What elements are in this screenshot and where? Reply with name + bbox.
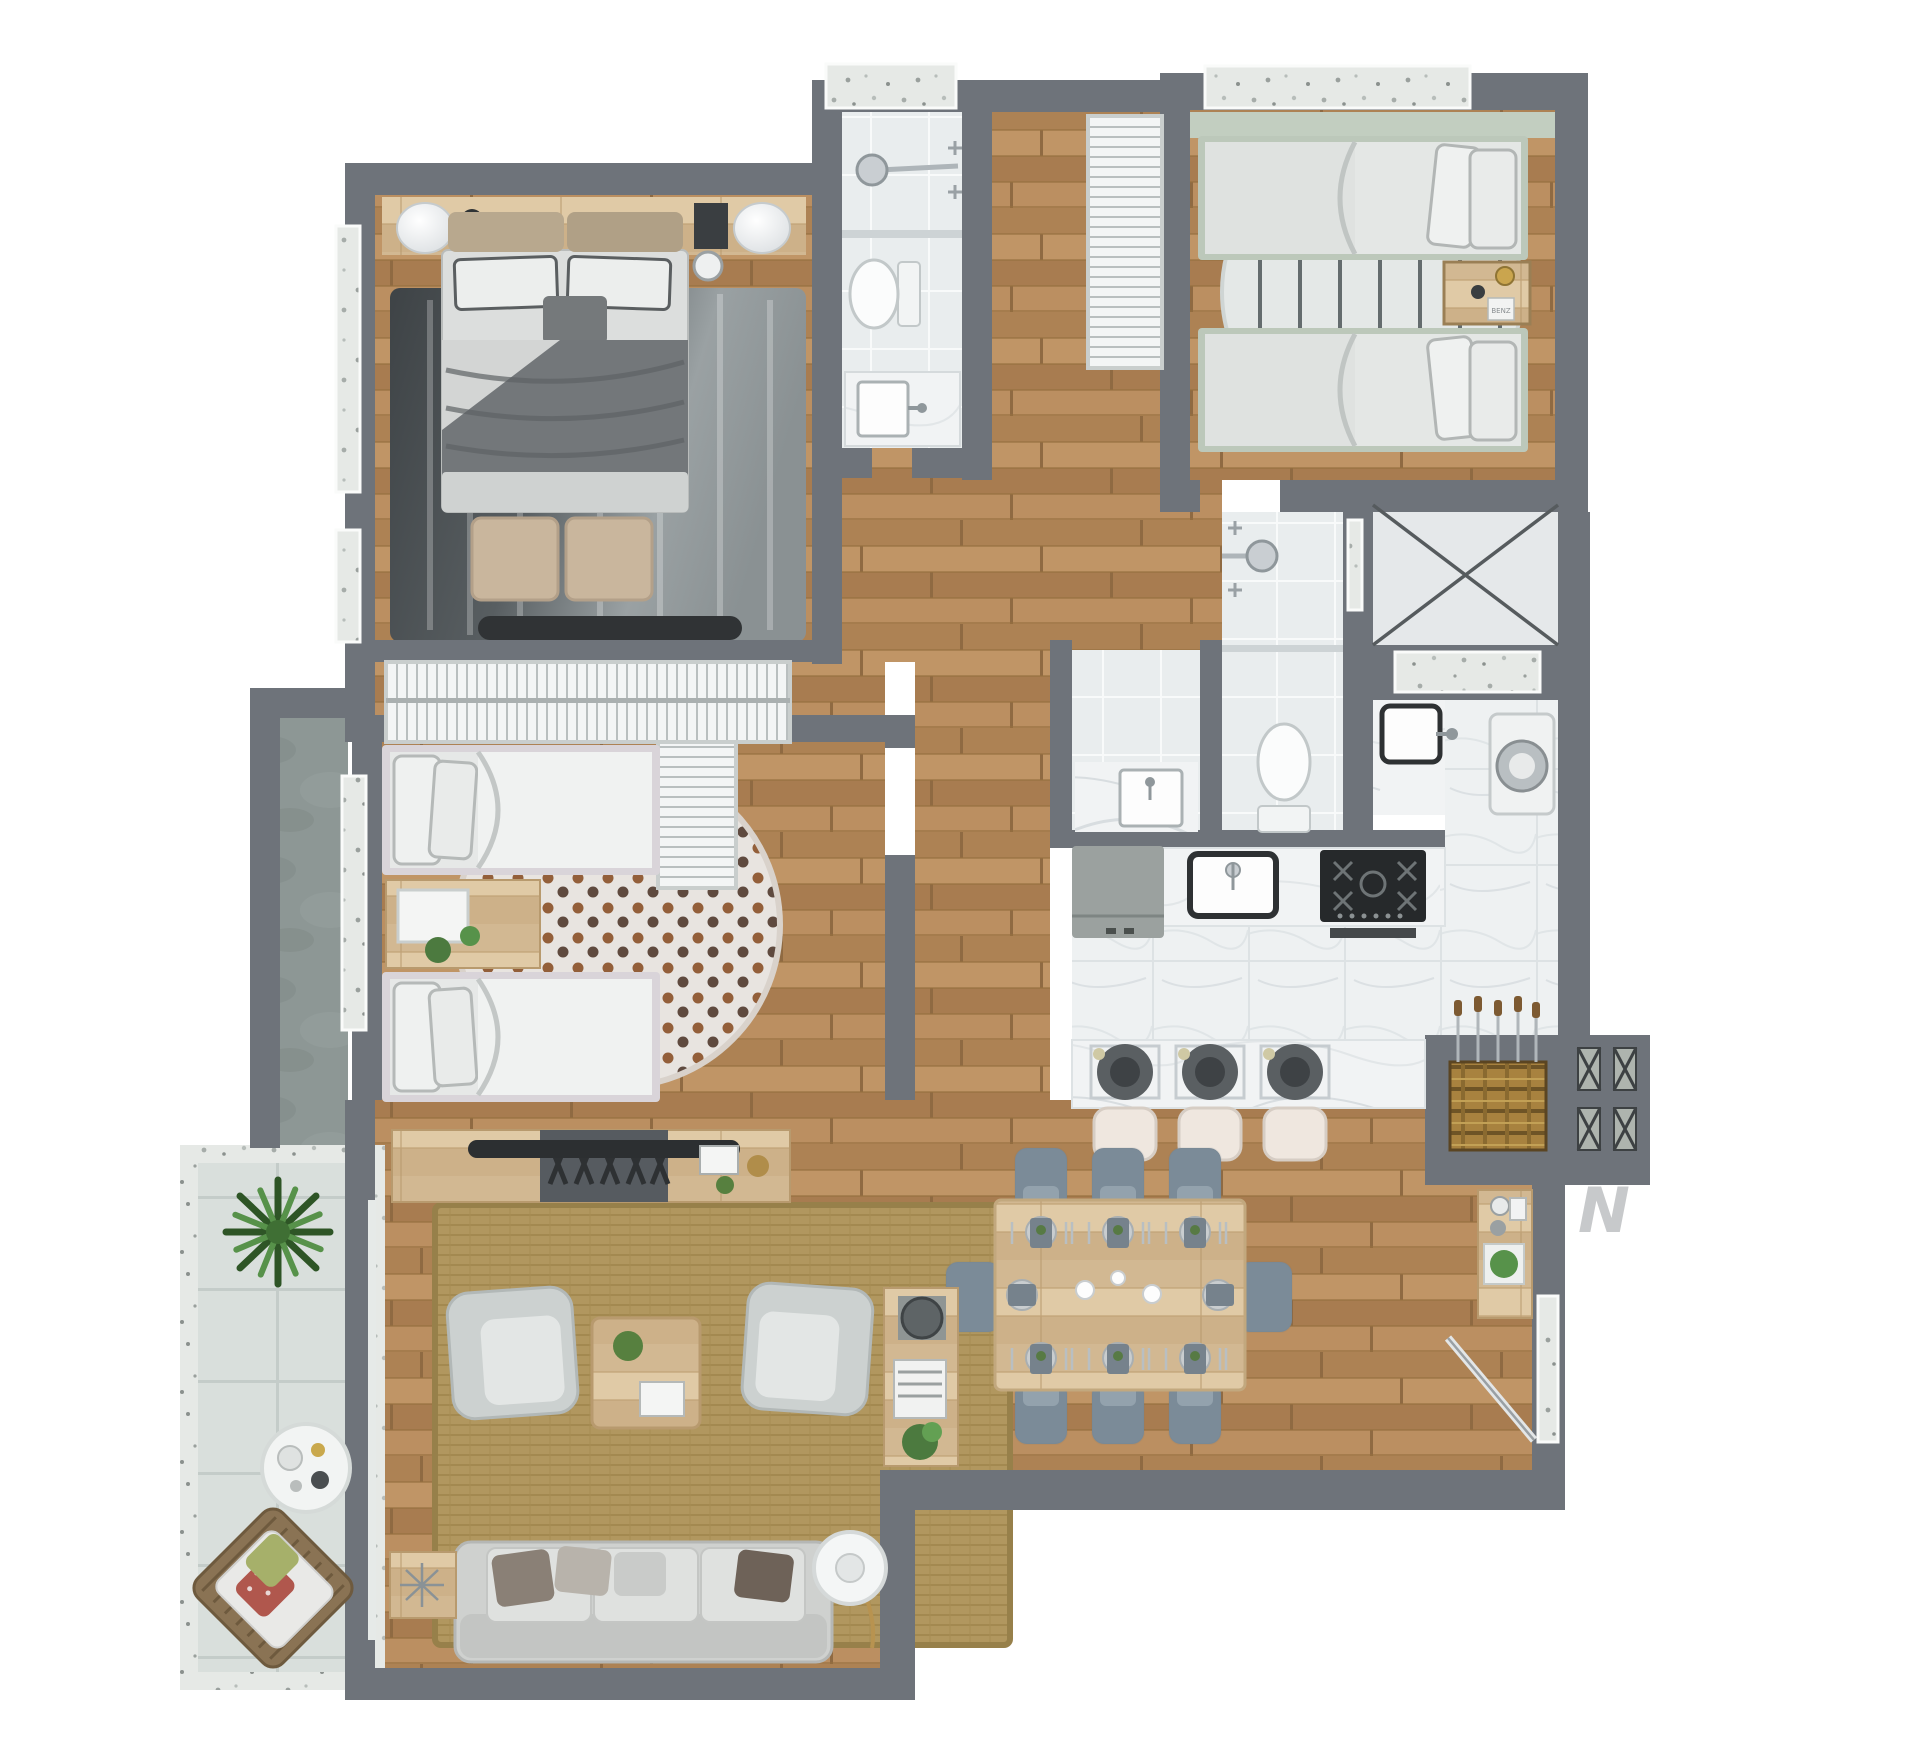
speaker-icon <box>694 203 728 249</box>
pillow <box>429 761 478 860</box>
shower-glass <box>1222 645 1343 652</box>
washing-machine-icon <box>1490 714 1554 814</box>
sofa <box>455 1542 832 1662</box>
floor-plan: BENZ <box>0 0 1920 1748</box>
wall <box>1050 640 1072 848</box>
wall <box>1160 480 1200 512</box>
side-table <box>390 1552 456 1618</box>
window <box>336 530 360 642</box>
wall <box>345 163 842 195</box>
north-letter: N <box>1578 1174 1630 1247</box>
kitchen-sink-icon <box>1190 854 1276 916</box>
pillow <box>454 256 558 310</box>
plant-icon <box>1490 1250 1518 1278</box>
ottoman <box>566 518 652 600</box>
plant-icon <box>613 1331 643 1361</box>
service-balcony-floor <box>280 718 348 1148</box>
wall <box>912 448 992 478</box>
book-icon <box>640 1382 684 1416</box>
shower-glass <box>842 230 962 238</box>
window <box>336 226 360 492</box>
pillow <box>554 1545 613 1596</box>
plant-icon <box>460 926 480 946</box>
ottoman <box>472 518 558 600</box>
wood-nightstand: BENZ <box>1444 262 1530 324</box>
refrigerator-icon <box>1072 846 1164 938</box>
armchair <box>741 1282 874 1416</box>
teapot-icon <box>278 1446 302 1470</box>
duvet <box>1205 334 1355 446</box>
pillow <box>1470 150 1516 248</box>
pillow <box>429 988 478 1087</box>
pillow <box>1470 342 1516 440</box>
bar-console <box>1478 1190 1532 1318</box>
terrace-sliding-door <box>368 1200 376 1640</box>
entry-threshold <box>1538 1296 1558 1442</box>
wall <box>885 855 915 1100</box>
slatted-cabinet <box>658 742 736 888</box>
sparkle-plant-icon <box>400 1563 444 1607</box>
table-lamp-icon <box>397 203 453 253</box>
bottles-icon <box>1510 1198 1526 1220</box>
wall <box>1555 73 1588 512</box>
duvet <box>478 979 652 1095</box>
tv-panel-icon <box>478 616 742 640</box>
sink-icon <box>858 382 908 436</box>
duvet <box>478 752 652 868</box>
decor-icon <box>1471 285 1485 299</box>
magazines-icon <box>894 1360 946 1418</box>
cup-icon <box>1490 1220 1506 1236</box>
window <box>1348 520 1362 610</box>
wardrobe-rail <box>386 698 790 703</box>
wall <box>250 688 348 718</box>
book-icon <box>700 1146 738 1174</box>
bowl-icon <box>311 1471 329 1489</box>
plant-icon <box>716 1176 734 1194</box>
coffee-table <box>592 1318 700 1428</box>
toilet-icon <box>1258 724 1310 832</box>
cup-icon <box>290 1480 302 1492</box>
bar-stool <box>1264 1108 1326 1160</box>
wall <box>885 715 915 748</box>
single-bed <box>382 972 660 1102</box>
wall <box>880 1470 1565 1510</box>
single-bed <box>1198 136 1528 260</box>
window <box>342 776 366 1030</box>
double-bed <box>442 212 688 512</box>
wall <box>1280 480 1588 512</box>
tray-icon <box>398 890 468 942</box>
sphere-lamp-icon <box>902 1298 942 1338</box>
tray-icon <box>694 252 722 280</box>
media-console <box>392 1130 790 1202</box>
window <box>1205 66 1470 108</box>
pillow <box>491 1548 556 1608</box>
sheet-band <box>442 472 688 512</box>
grill-mat <box>1450 1062 1546 1150</box>
window <box>1395 652 1540 692</box>
accent-pillow <box>543 296 607 344</box>
headboard-band <box>1190 112 1555 138</box>
lemon-icon <box>311 1443 325 1457</box>
console-with-lamp <box>884 1288 958 1466</box>
plant-icon <box>922 1422 942 1442</box>
wall <box>842 448 872 478</box>
wall <box>880 1510 915 1700</box>
plant-icon <box>425 937 451 963</box>
wall <box>345 1668 915 1700</box>
wall <box>962 112 992 480</box>
single-bed <box>382 745 660 875</box>
service-rack <box>1088 116 1162 368</box>
round-side-table <box>262 1424 350 1512</box>
island-place-settings <box>1091 1044 1329 1100</box>
single-bed <box>1198 328 1528 452</box>
north-indicator: N <box>1578 1174 1630 1247</box>
wall <box>1050 830 1445 848</box>
wall <box>250 688 280 1148</box>
clock-icon <box>1496 267 1514 285</box>
floor-plan-canvas: BENZ <box>0 0 1920 1748</box>
bath-passage-floor <box>1050 512 1222 662</box>
pillow <box>614 1552 666 1596</box>
table-lamp-icon <box>734 203 790 253</box>
corridor-floor <box>915 662 1050 1100</box>
bowl-icon <box>747 1155 769 1177</box>
shower-head-icon <box>1247 541 1277 571</box>
shower-head-icon <box>857 155 887 185</box>
wall <box>1160 110 1190 480</box>
toilet-icon <box>850 260 920 328</box>
plate-icon <box>1491 1197 1509 1215</box>
wall <box>1558 512 1590 1035</box>
pillow <box>733 1549 794 1603</box>
oven-handle <box>1330 928 1416 938</box>
duvet <box>1205 142 1355 254</box>
wall <box>812 195 842 664</box>
wall <box>375 640 842 662</box>
armchair <box>446 1286 579 1420</box>
window <box>826 64 956 108</box>
utility-sink-icon <box>1382 706 1440 762</box>
wall <box>1200 640 1222 832</box>
decor-box-label: BENZ <box>1491 307 1510 315</box>
